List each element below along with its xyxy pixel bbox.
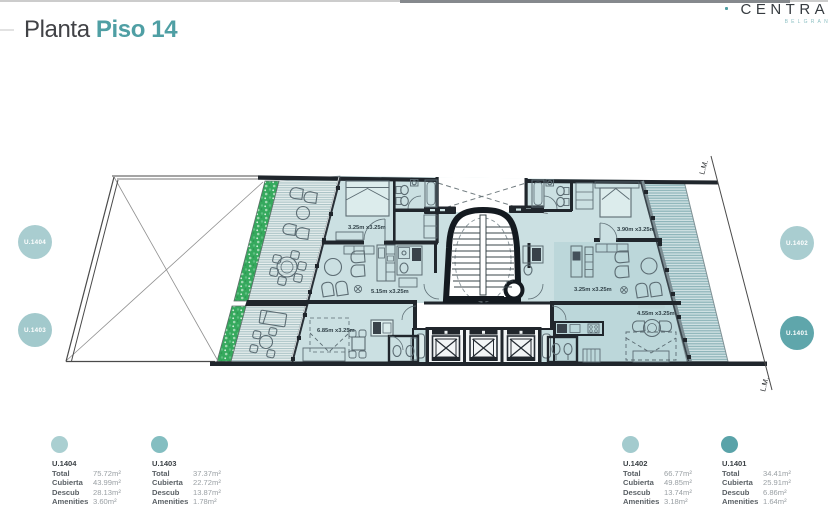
svg-text:3.25m x3.25m: 3.25m x3.25m — [574, 287, 612, 293]
svg-text:4.55m x3.25m: 4.55m x3.25m — [637, 311, 675, 317]
svg-text:6.85m x3.25m: 6.85m x3.25m — [317, 328, 355, 334]
svg-text:L.M.: L.M. — [758, 376, 770, 392]
svg-text:5.15m x3.25m: 5.15m x3.25m — [371, 289, 409, 295]
svg-text:3.90m x3.25m: 3.90m x3.25m — [617, 227, 655, 233]
svg-text:L.M.: L.M. — [697, 159, 710, 176]
svg-text:3.25m x3.25m: 3.25m x3.25m — [348, 225, 386, 231]
